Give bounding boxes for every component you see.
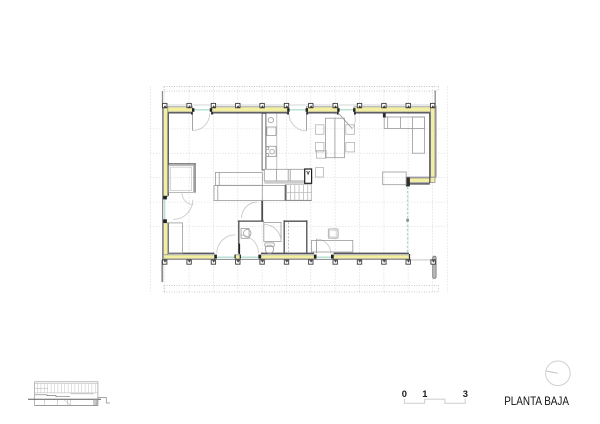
svg-text:0: 0 <box>402 388 407 399</box>
svg-text:PLANTA BAJA: PLANTA BAJA <box>504 396 569 408</box>
svg-text:1: 1 <box>422 388 427 399</box>
svg-text:3: 3 <box>463 388 468 399</box>
